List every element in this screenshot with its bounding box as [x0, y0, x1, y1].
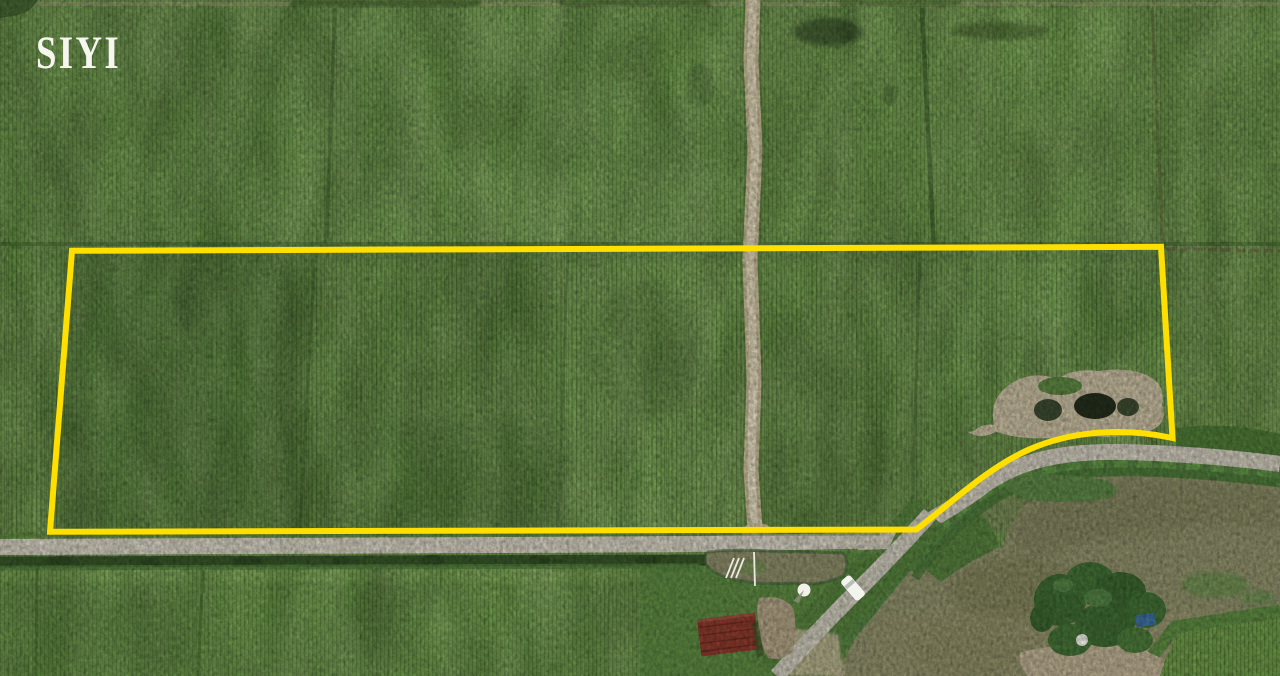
svg-text:SIYI: SIYI — [36, 27, 121, 79]
